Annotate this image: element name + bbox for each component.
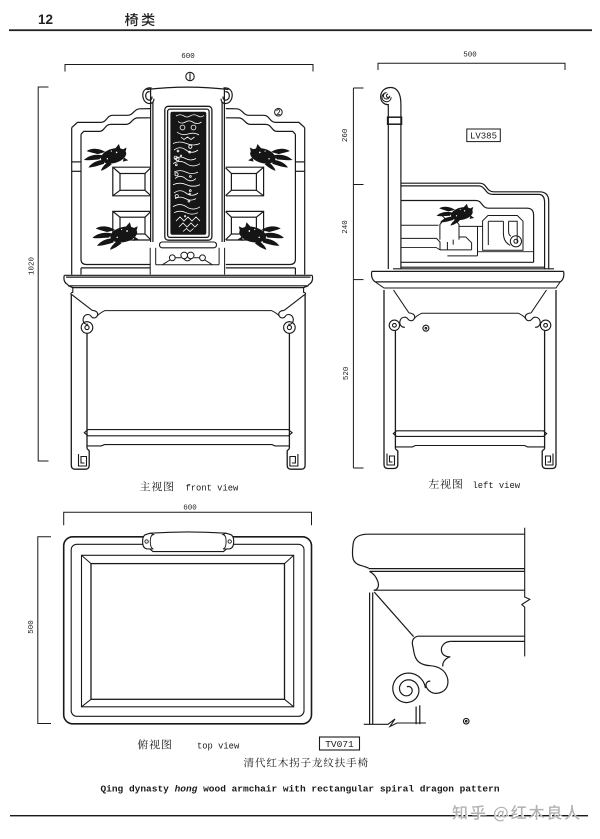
svg-text:240: 240 [342,220,350,234]
svg-text:500: 500 [463,52,477,60]
svg-text:left view: left view [473,481,521,491]
svg-text:500: 500 [28,620,36,634]
svg-text:top view: top view [197,742,240,752]
svg-text:1020: 1020 [29,257,37,276]
svg-text:Qing dynasty hong wood armchai: Qing dynasty hong wood armchair with rec… [100,784,499,795]
svg-text:12: 12 [38,12,53,27]
svg-text:520: 520 [343,366,351,380]
svg-text:600: 600 [181,53,195,61]
svg-text:260: 260 [342,128,350,142]
svg-text:TV071: TV071 [325,739,354,750]
svg-text:600: 600 [183,505,197,513]
svg-text:LV385: LV385 [470,132,497,142]
svg-text:front view: front view [186,484,240,494]
